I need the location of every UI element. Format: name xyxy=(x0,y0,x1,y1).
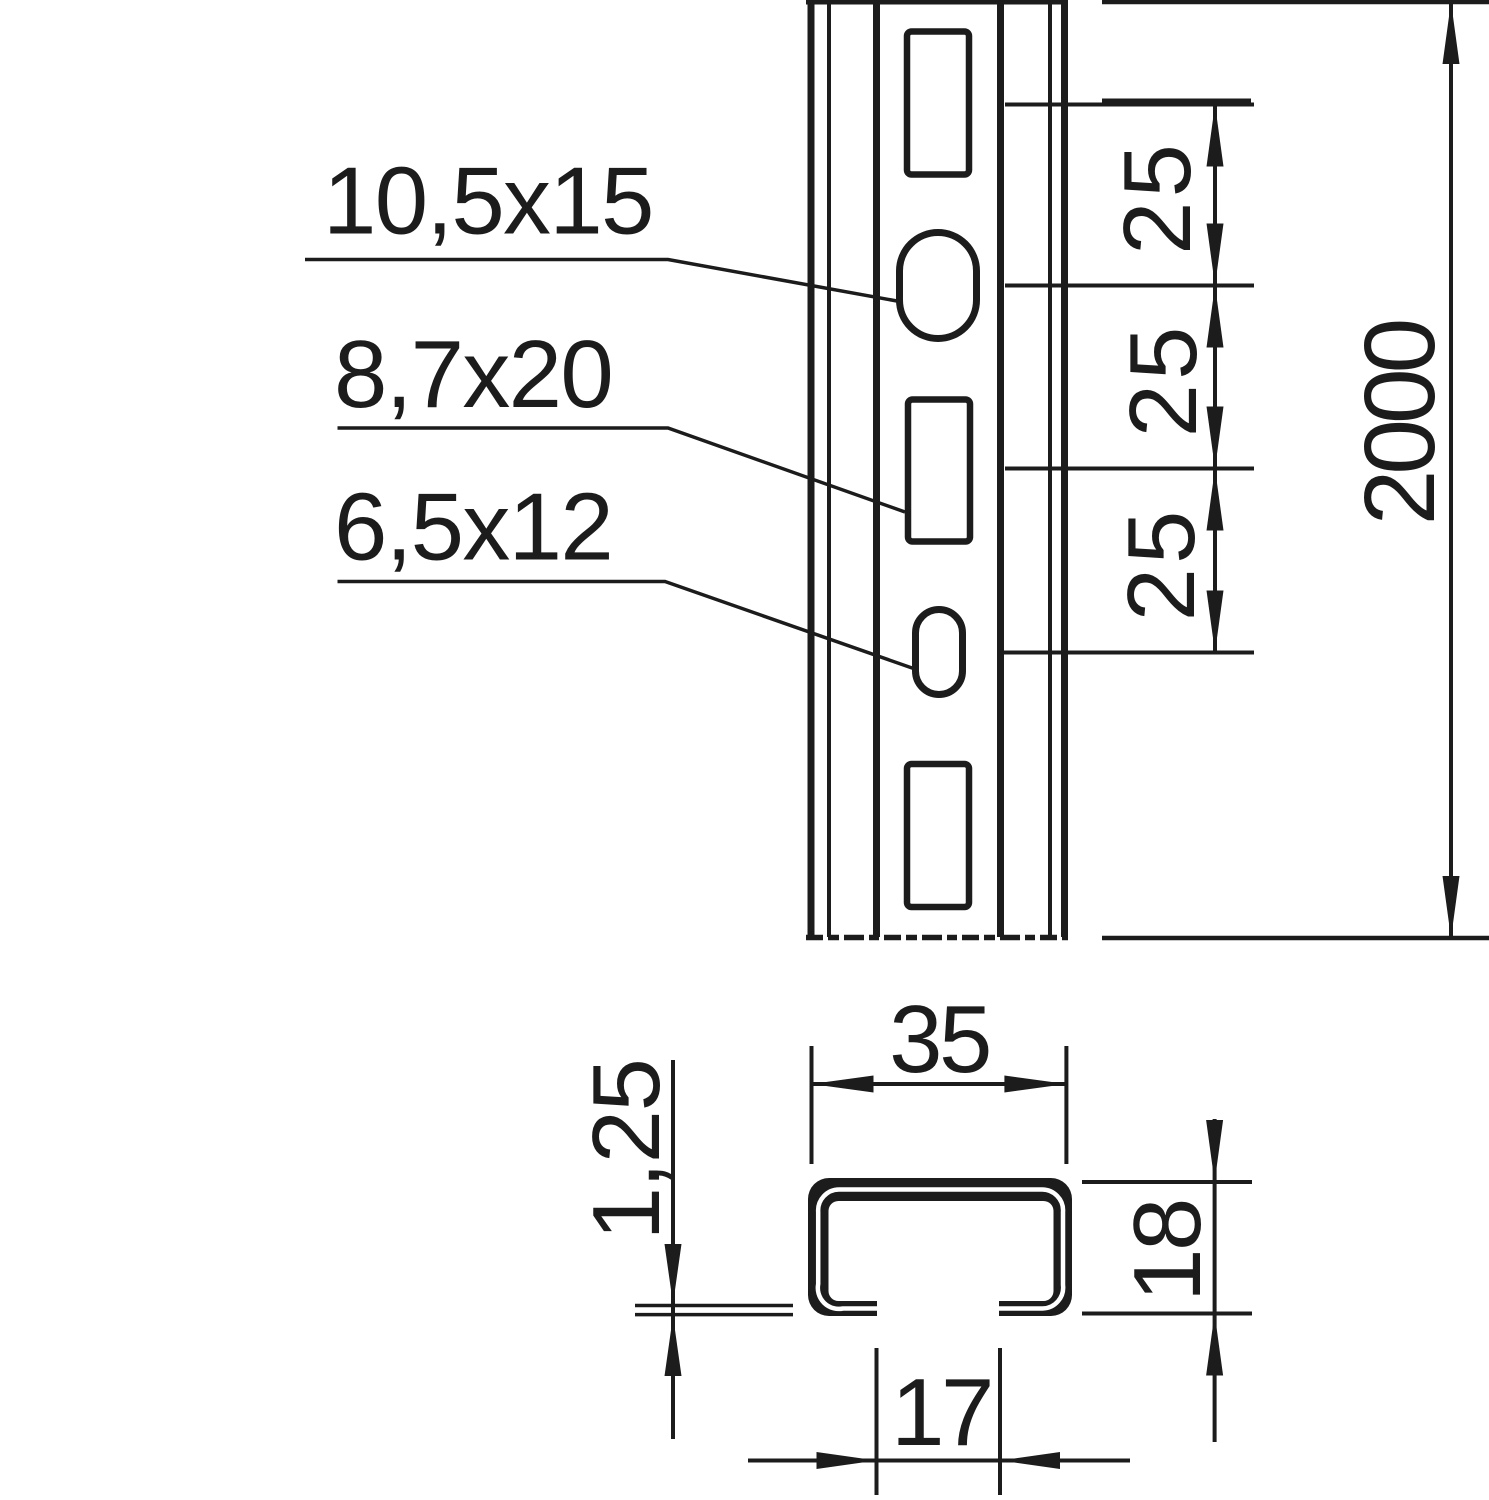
svg-text:17: 17 xyxy=(891,1359,991,1466)
svg-text:10,5x15: 10,5x15 xyxy=(323,148,653,255)
svg-text:18: 18 xyxy=(1114,1200,1221,1302)
svg-text:6,5x12: 6,5x12 xyxy=(334,474,612,581)
svg-text:8,7x20: 8,7x20 xyxy=(334,321,612,428)
svg-text:2000: 2000 xyxy=(1344,321,1456,525)
svg-text:25: 25 xyxy=(1104,140,1211,255)
svg-text:25: 25 xyxy=(1108,507,1215,622)
svg-text:25: 25 xyxy=(1110,323,1217,438)
svg-text:1,25: 1,25 xyxy=(573,1060,680,1241)
svg-text:35: 35 xyxy=(889,986,989,1093)
